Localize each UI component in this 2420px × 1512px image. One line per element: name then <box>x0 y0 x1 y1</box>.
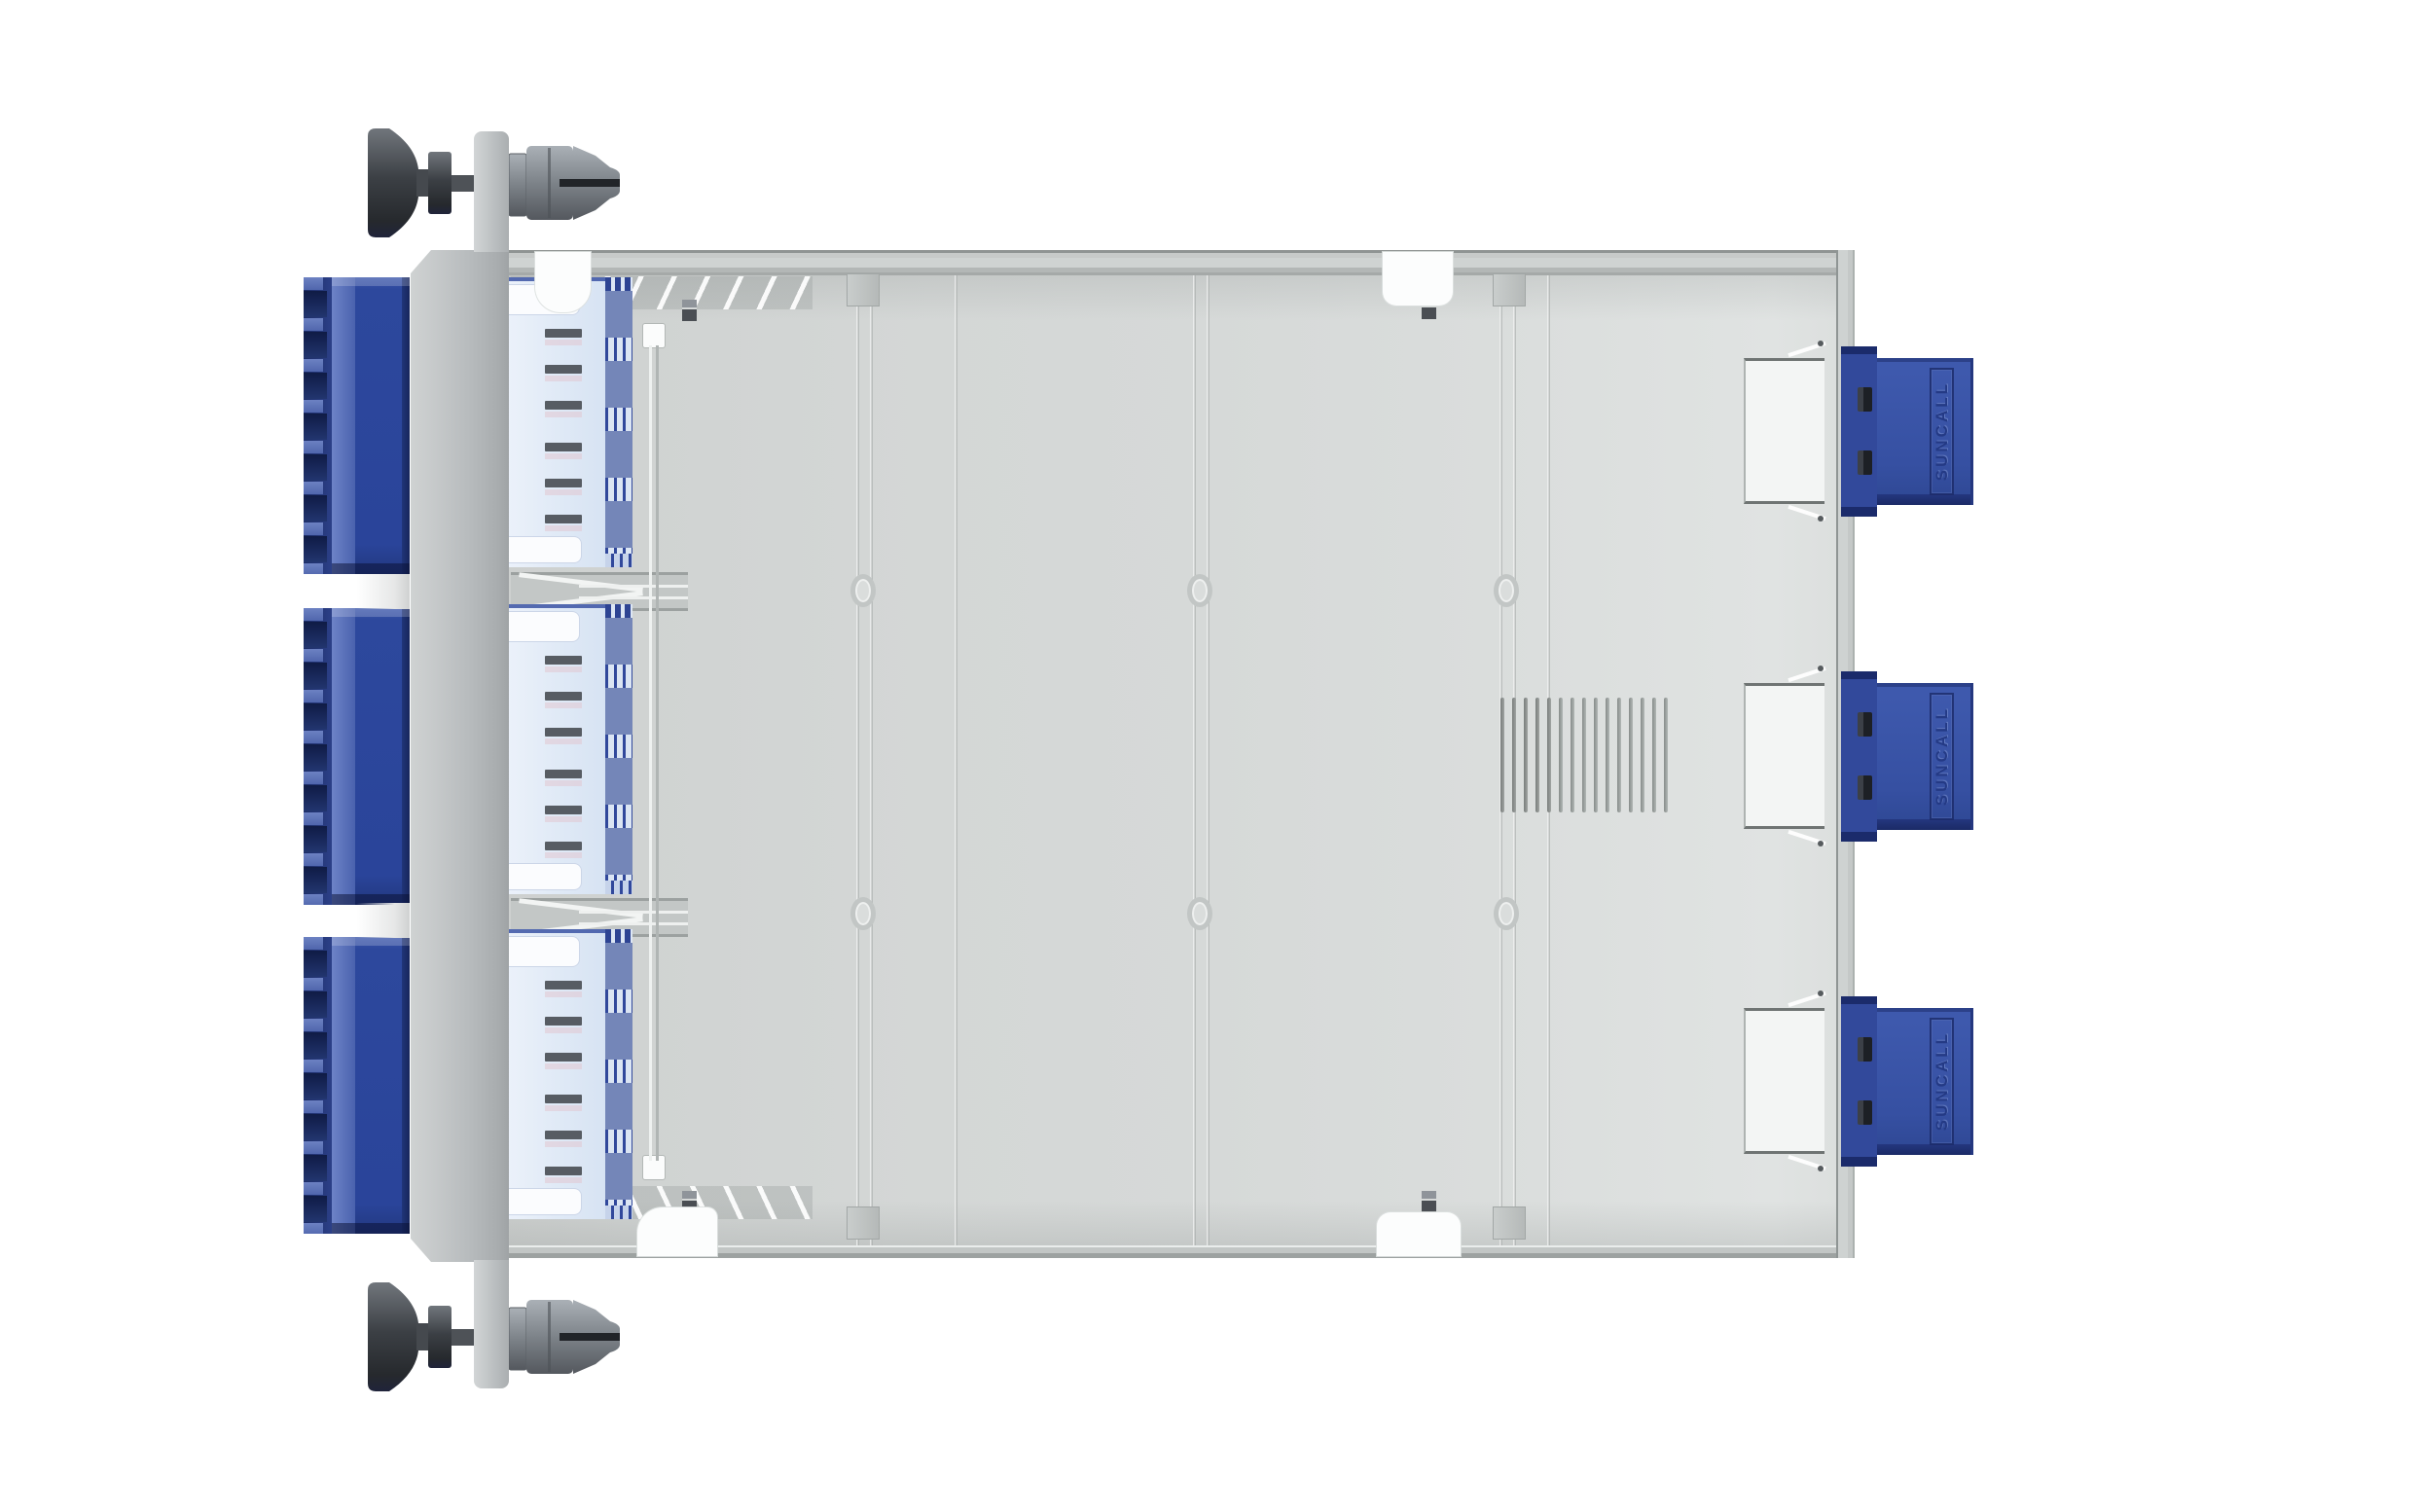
vent-slot <box>1524 698 1528 812</box>
lc-latch-tooth <box>304 522 323 535</box>
latch-column-band <box>605 735 632 758</box>
tray-vertical-rib <box>856 275 859 1245</box>
adapter-pin <box>1818 1166 1824 1171</box>
lc-latch-slot <box>304 536 327 562</box>
lc-latch-tooth <box>304 1141 323 1154</box>
adapter-pin <box>1818 341 1824 346</box>
adapter-latch-echo <box>545 376 582 381</box>
adapter-label-blank <box>509 863 582 890</box>
adapter-latch-echo <box>545 666 582 672</box>
latch-column-cap <box>605 604 632 618</box>
vent-grille <box>1500 698 1672 812</box>
lc-bank-top-face <box>332 608 410 617</box>
lid-edge-shadow <box>656 345 659 1161</box>
hinge-pin-clip <box>682 300 697 321</box>
adapter-latch-dash <box>545 656 582 665</box>
mpo-connector-base <box>1841 346 1877 517</box>
lc-latch-slot <box>304 332 327 358</box>
lc-adapter-bank <box>304 608 410 905</box>
lc-bank-bottom-shadow <box>332 563 410 574</box>
lc-bank-shadow-edge <box>402 277 410 574</box>
tray-screw-boss <box>1494 897 1519 930</box>
lc-latch-slot <box>304 495 327 522</box>
adapter-label-blank <box>509 611 580 642</box>
mpo-adapter-plate <box>1744 339 1841 523</box>
chassis-tray <box>509 250 1855 1258</box>
vent-slot <box>1582 698 1586 812</box>
adapter-latch-echo <box>545 1063 582 1069</box>
adapter-latch-column <box>605 277 632 567</box>
lc-latch-slot <box>304 826 327 852</box>
tray-vertical-rib <box>870 275 873 1245</box>
lc-latch-slot <box>304 373 327 399</box>
mpo-connector-body <box>1877 683 1973 830</box>
adapter-latch-dash <box>545 365 582 374</box>
adapter-latch-echo <box>545 816 582 822</box>
guide-line <box>579 911 688 914</box>
vent-slot <box>1500 698 1504 812</box>
lc-latch-tooth <box>304 690 323 702</box>
adapter-latch-dash <box>545 1095 582 1103</box>
lc-latch-slot <box>304 785 327 811</box>
cassette-module-render: SUNCALLSUNCALLSUNCALL <box>0 0 2420 1512</box>
mpo-connector: SUNCALL <box>1841 996 1978 1167</box>
adapter-latch-dash <box>545 515 582 523</box>
tray-screw-boss <box>850 574 876 607</box>
lc-bank-highlight <box>332 277 355 574</box>
lc-latch-tooth <box>304 318 323 331</box>
adapter-latch-column <box>605 604 632 894</box>
lc-latch-slot <box>304 1073 327 1099</box>
lid-latch-block <box>643 1156 665 1179</box>
vent-slot <box>1629 698 1633 812</box>
adapter-latch-dash <box>545 981 582 990</box>
mpo-adapter-label <box>1744 1008 1824 1154</box>
lc-latch-tooth <box>304 359 323 372</box>
mpo-latch-window <box>1858 775 1872 800</box>
mpo-latch-window <box>1858 450 1872 475</box>
adapter-label-blank <box>509 536 582 563</box>
latch-column-cap <box>605 554 632 567</box>
rib-post <box>847 273 880 306</box>
vent-slot <box>1547 698 1551 812</box>
vent-slot <box>1571 698 1574 812</box>
adapter-latch-dash <box>545 806 582 814</box>
mpo-adapter-label <box>1744 358 1824 504</box>
vent-slot <box>1652 698 1656 812</box>
adapter-latch-echo <box>545 780 582 786</box>
mpo-connector: SUNCALL <box>1841 671 1978 842</box>
lc-adapter-row-interior <box>509 604 632 894</box>
vent-slot <box>1512 698 1516 812</box>
adapter-latch-dash <box>545 692 582 701</box>
lc-adapter-row-interior <box>509 929 632 1219</box>
mpo-latch-window <box>1858 712 1872 737</box>
lc-latch-slot <box>304 622 327 648</box>
adapter-latch-dash <box>545 479 582 487</box>
tray-screw-boss <box>850 897 876 930</box>
adapter-latch-dash <box>545 1053 582 1062</box>
latch-column-band <box>605 338 632 361</box>
lc-latch-slot <box>304 1032 327 1059</box>
rib-post <box>1493 273 1526 306</box>
adapter-latch-echo <box>545 489 582 495</box>
front-faceplate <box>411 250 509 1262</box>
adapter-latch-echo <box>545 738 582 744</box>
rib-post <box>847 1206 880 1240</box>
adapter-latch-column <box>605 929 632 1219</box>
lc-adapter-bank <box>304 937 410 1234</box>
guide-line <box>579 922 688 925</box>
adapter-pin <box>1818 666 1824 671</box>
adapter-latch-dash <box>545 329 582 338</box>
mpo-adapter-plate <box>1744 989 1841 1173</box>
adapter-label-blank <box>509 1188 582 1215</box>
lc-latch-slot <box>304 291 327 317</box>
lc-latch-tooth <box>304 1019 323 1031</box>
adapter-latch-echo <box>545 412 582 417</box>
lc-latch-slot <box>304 414 327 440</box>
adapter-latch-echo <box>545 340 582 345</box>
lc-latch-tooth <box>304 400 323 413</box>
latch-column-band <box>605 1060 632 1083</box>
latch-column-cap <box>605 1206 632 1219</box>
adapter-latch-echo <box>545 525 582 531</box>
adapter-latch-echo <box>545 991 582 997</box>
adapter-latch-dash <box>545 728 582 737</box>
brand-emboss: SUNCALL <box>1930 693 1954 820</box>
lc-latch-tooth <box>304 277 323 290</box>
adapter-latch-echo <box>545 852 582 858</box>
adapter-latch-dash <box>545 1167 582 1175</box>
tray-screw-boss <box>1187 574 1212 607</box>
tray-vertical-rib <box>955 275 957 1245</box>
lc-latch-tooth <box>304 649 323 662</box>
lc-bank-gap <box>304 574 410 609</box>
guide-line <box>579 585 688 588</box>
lc-bank-bottom-shadow <box>332 1223 410 1234</box>
vent-slot <box>1617 698 1621 812</box>
lc-bank-highlight <box>332 608 355 905</box>
adapter-rear-panel <box>509 277 605 567</box>
tray-screw-boss <box>1187 897 1212 930</box>
tray-vertical-rib <box>1193 275 1196 1245</box>
brand-emboss: SUNCALL <box>1930 368 1954 495</box>
adapter-pin <box>1818 990 1824 996</box>
adapter-label-blank <box>509 936 580 967</box>
adapter-latch-dash <box>545 1017 582 1026</box>
lc-latch-tooth <box>304 482 323 494</box>
lid-latch-block <box>643 324 665 347</box>
lc-latch-tooth <box>304 608 323 621</box>
latch-column-band <box>605 478 632 501</box>
lc-bank-shadow-edge <box>402 937 410 1234</box>
lc-latch-slot <box>304 663 327 689</box>
vent-slot <box>1606 698 1609 812</box>
lc-latch-tooth <box>304 1060 323 1072</box>
brand-emboss: SUNCALL <box>1930 1018 1954 1145</box>
latch-column-band <box>605 1130 632 1153</box>
lc-latch-slot <box>304 1114 327 1140</box>
latch-column-band <box>605 665 632 688</box>
brand-text: SUNCALL <box>1932 706 1952 806</box>
lc-latch-tooth <box>304 731 323 743</box>
lc-latch-slot <box>304 703 327 730</box>
mounting-tab-top <box>474 131 509 252</box>
lc-latch-slot <box>304 1155 327 1181</box>
lc-latch-tooth <box>304 563 323 574</box>
lc-adapter-bank <box>304 277 410 574</box>
lc-bank-body <box>355 277 402 574</box>
lc-latch-slot <box>304 951 327 977</box>
lc-latch-tooth <box>304 978 323 990</box>
adapter-latch-echo <box>545 1177 582 1183</box>
latch-column-band <box>605 805 632 828</box>
mpo-connector-base <box>1841 996 1877 1167</box>
rib-post <box>1493 1206 1526 1240</box>
vent-slot <box>1535 698 1539 812</box>
lid-edge-highlight <box>649 345 652 1161</box>
lc-latch-tooth <box>304 1100 323 1113</box>
adapter-pin <box>1818 516 1824 522</box>
tray-vertical-rib <box>1207 275 1210 1245</box>
lc-latch-tooth <box>304 937 323 950</box>
tray-top-rim <box>509 250 1855 275</box>
lc-latch-tooth <box>304 853 323 866</box>
adapter-latch-echo <box>545 1141 582 1147</box>
lc-bank-shadow-edge <box>402 608 410 905</box>
adapter-latch-dash <box>545 842 582 850</box>
latch-column-band <box>605 990 632 1013</box>
adapter-latch-dash <box>545 443 582 451</box>
vent-slot <box>1559 698 1563 812</box>
adapter-pin <box>1818 841 1824 846</box>
latch-clip-bottom-left <box>637 1207 717 1256</box>
tray-screw-boss <box>1494 574 1519 607</box>
latch-column-cap <box>605 881 632 894</box>
mpo-latch-window <box>1858 1100 1872 1125</box>
guide-diagonal <box>519 898 643 918</box>
lc-bank-body <box>355 608 402 905</box>
hinge-pin-clip <box>1422 1191 1436 1212</box>
mpo-connector-body <box>1877 358 1973 505</box>
lc-latch-slot <box>304 744 327 771</box>
lc-bank-gap <box>304 903 410 938</box>
vent-slot <box>1664 698 1668 812</box>
guide-line <box>579 596 688 599</box>
mpo-adapter-label <box>1744 683 1824 829</box>
brand-text: SUNCALL <box>1932 381 1952 481</box>
adapter-latch-echo <box>545 702 582 708</box>
adapter-latch-dash <box>545 401 582 410</box>
adapter-latch-echo <box>545 1027 582 1033</box>
adapter-latch-dash <box>545 770 582 778</box>
mounting-tab-bottom <box>474 1260 509 1388</box>
lc-latch-tooth <box>304 441 323 453</box>
lc-latch-slot <box>304 454 327 481</box>
lc-latch-slot <box>304 1196 327 1222</box>
latch-column-cap <box>605 277 632 291</box>
lc-latch-tooth <box>304 1182 323 1195</box>
lc-latch-tooth <box>304 772 323 784</box>
latch-clip-top-left <box>535 252 591 312</box>
lc-latch-slot <box>304 991 327 1018</box>
latch-column-cap <box>605 929 632 943</box>
brand-text: SUNCALL <box>1932 1031 1952 1131</box>
mpo-connector-base <box>1841 671 1877 842</box>
adapter-latch-echo <box>545 1105 582 1111</box>
mpo-connector-body <box>1877 1008 1973 1155</box>
vent-slot <box>1641 698 1644 812</box>
lc-bank-top-face <box>332 277 410 286</box>
lc-latch-tooth <box>304 1223 323 1234</box>
adapter-latch-echo <box>545 453 582 459</box>
lc-bank-highlight <box>332 937 355 1234</box>
mpo-adapter-plate <box>1744 664 1841 848</box>
guide-diagonal <box>519 572 643 593</box>
adapter-rear-panel <box>509 604 605 894</box>
latch-clip-top-right <box>1383 252 1453 306</box>
adapter-rear-panel <box>509 929 605 1219</box>
lc-bank-body <box>355 937 402 1234</box>
lc-bank-top-face <box>332 937 410 946</box>
mpo-latch-window <box>1858 1037 1872 1062</box>
adapter-latch-dash <box>545 1131 582 1139</box>
lc-latch-tooth <box>304 812 323 825</box>
mpo-connector: SUNCALL <box>1841 346 1978 517</box>
vent-slot <box>1594 698 1598 812</box>
mpo-latch-window <box>1858 387 1872 412</box>
latch-column-band <box>605 408 632 431</box>
latch-clip-bottom-right <box>1377 1212 1461 1256</box>
lc-adapter-row-interior <box>509 277 632 567</box>
lc-latch-slot <box>304 867 327 893</box>
